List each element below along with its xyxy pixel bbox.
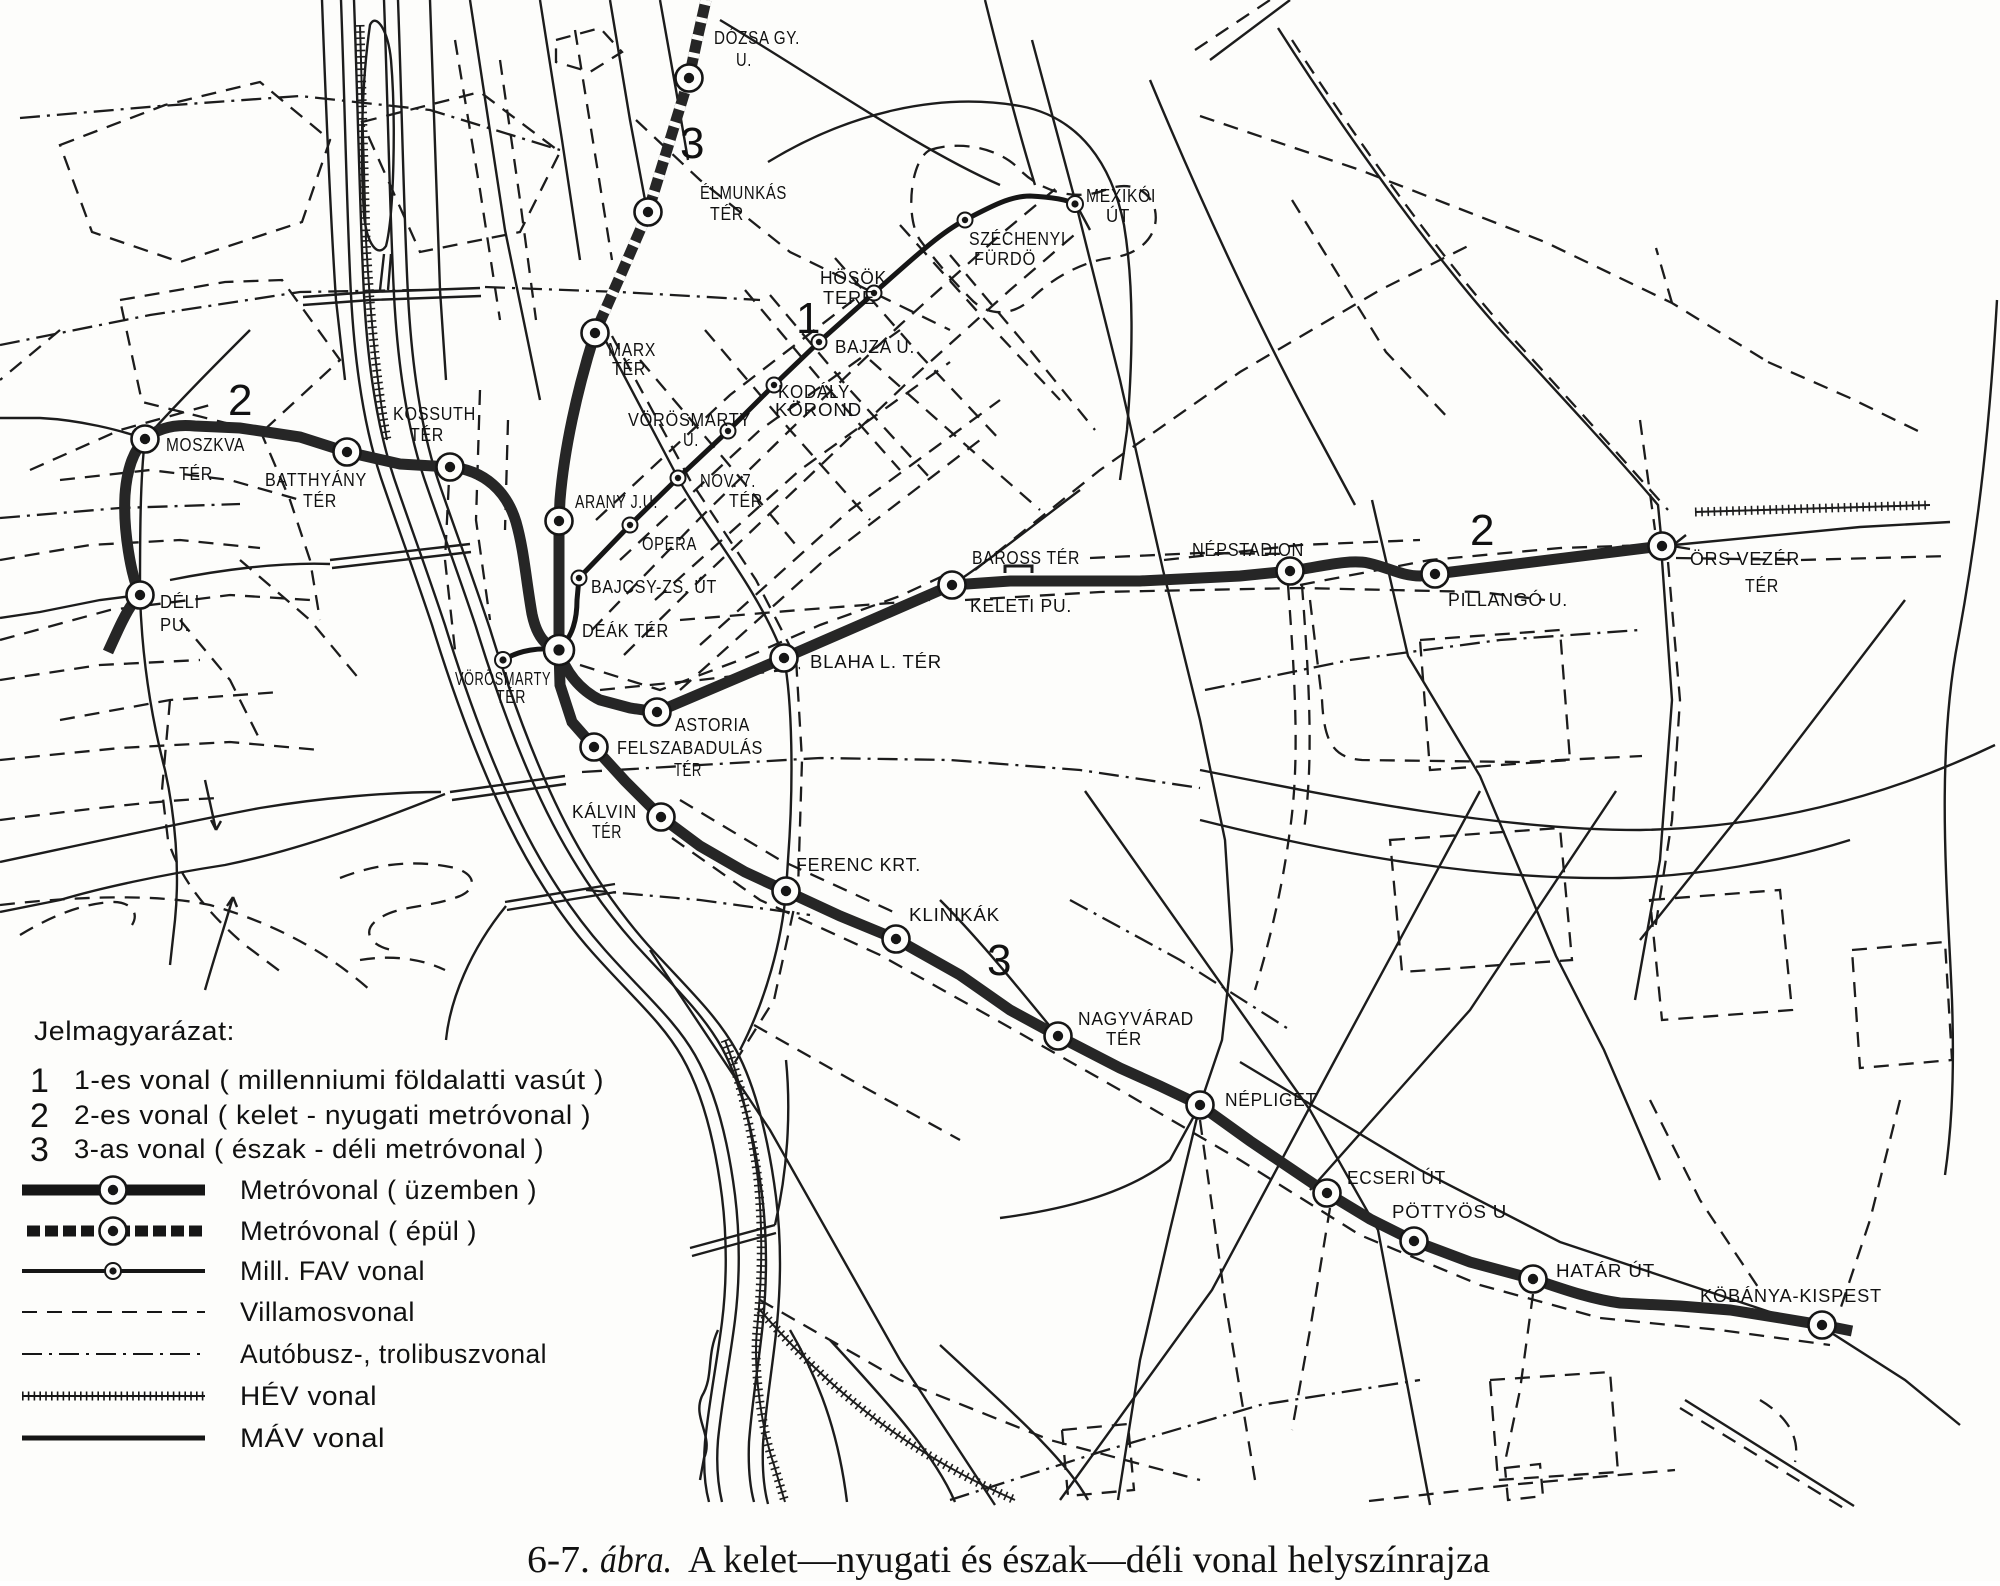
svg-text:Autóbusz-, trolibuszvonal: Autóbusz-, trolibuszvonal bbox=[240, 1339, 547, 1369]
svg-text:TÉR: TÉR bbox=[1745, 575, 1779, 596]
svg-text:Metróvonal ( üzemben ): Metróvonal ( üzemben ) bbox=[240, 1175, 537, 1205]
svg-text:MARX: MARX bbox=[608, 339, 656, 360]
svg-text:ÉLMUNKÁS: ÉLMUNKÁS bbox=[700, 182, 787, 203]
svg-text:Metróvonal ( épül ): Metróvonal ( épül ) bbox=[240, 1216, 477, 1246]
svg-text:TÉR: TÉR bbox=[592, 821, 622, 842]
svg-text:Jelmagyarázat:: Jelmagyarázat: bbox=[34, 1016, 235, 1046]
svg-text:1-es vonal ( millenniumi földa: 1-es vonal ( millenniumi földalatti vasú… bbox=[74, 1065, 604, 1095]
svg-text:ASTORIA: ASTORIA bbox=[675, 714, 750, 735]
svg-text:NÉPSTADION: NÉPSTADION bbox=[1192, 539, 1304, 560]
svg-text:NÉPLIGET: NÉPLIGET bbox=[1225, 1089, 1317, 1110]
svg-text:2: 2 bbox=[1470, 506, 1494, 555]
svg-text:SZÉCHENYI: SZÉCHENYI bbox=[969, 228, 1066, 249]
svg-text:TÉR: TÉR bbox=[303, 490, 337, 511]
svg-text:DÉLI: DÉLI bbox=[160, 591, 200, 612]
svg-text:KELETI PU.: KELETI PU. bbox=[970, 595, 1072, 616]
svg-text:MEXIKÓI: MEXIKÓI bbox=[1086, 185, 1156, 206]
svg-text:OPERA: OPERA bbox=[642, 533, 697, 554]
svg-text:FÜRDÖ: FÜRDÖ bbox=[974, 248, 1036, 269]
svg-text:DÓZSA GY.: DÓZSA GY. bbox=[714, 27, 800, 48]
svg-text:TÉR: TÉR bbox=[410, 424, 444, 445]
svg-text:ECSERI ÚT: ECSERI ÚT bbox=[1347, 1167, 1446, 1188]
svg-text:BAROSS TÉR: BAROSS TÉR bbox=[972, 547, 1080, 568]
svg-text:ARANY J.U.: ARANY J.U. bbox=[575, 491, 658, 512]
svg-text:TÉR: TÉR bbox=[612, 358, 646, 379]
svg-text:6-7.: 6-7. bbox=[527, 1539, 590, 1581]
svg-text:HÉV vonal: HÉV vonal bbox=[240, 1381, 377, 1411]
svg-text:TÉR: TÉR bbox=[1106, 1028, 1142, 1049]
svg-text:TÉR: TÉR bbox=[729, 490, 763, 511]
svg-text:Villamosvonal: Villamosvonal bbox=[240, 1297, 415, 1327]
svg-text:PU.: PU. bbox=[160, 614, 190, 635]
svg-text:PILLANGÓ U.: PILLANGÓ U. bbox=[1448, 589, 1568, 610]
svg-text:KÁLVIN: KÁLVIN bbox=[572, 801, 637, 822]
svg-text:MÁV vonal: MÁV vonal bbox=[240, 1423, 385, 1453]
svg-text:ábra.: ábra. bbox=[600, 1539, 672, 1581]
svg-text:KLINIKÁK: KLINIKÁK bbox=[909, 904, 1000, 925]
svg-text:1: 1 bbox=[796, 294, 820, 343]
svg-text:3-as vonal ( észak - déli metr: 3-as vonal ( észak - déli metróvonal ) bbox=[74, 1134, 544, 1164]
svg-text:BAJCSY-ZS. ÚT: BAJCSY-ZS. ÚT bbox=[591, 576, 717, 597]
svg-text:Mill. FAV vonal: Mill. FAV vonal bbox=[240, 1256, 425, 1286]
svg-text:KOSSUTH: KOSSUTH bbox=[393, 403, 476, 424]
svg-text:A kelet—nyugati és észak—déli: A kelet—nyugati és észak—déli vonal hely… bbox=[688, 1539, 1490, 1581]
svg-text:ÚT: ÚT bbox=[1106, 205, 1130, 226]
svg-text:TÉR: TÉR bbox=[179, 463, 213, 484]
svg-text:NOV. 7.: NOV. 7. bbox=[700, 470, 756, 491]
svg-text:HÖSÖK: HÖSÖK bbox=[820, 267, 887, 288]
svg-text:DEÁK TÉR: DEÁK TÉR bbox=[582, 620, 669, 641]
svg-text:HATÁR ÚT: HATÁR ÚT bbox=[1556, 1260, 1655, 1281]
svg-text:BATTHYÁNY: BATTHYÁNY bbox=[265, 469, 367, 490]
svg-text:TÉR: TÉR bbox=[710, 203, 744, 224]
svg-text:PÖTTYÖS U: PÖTTYÖS U bbox=[1392, 1201, 1507, 1222]
svg-text:3: 3 bbox=[680, 119, 704, 168]
svg-text:2: 2 bbox=[30, 1097, 49, 1135]
svg-text:2: 2 bbox=[228, 376, 252, 425]
svg-text:U.: U. bbox=[736, 49, 752, 70]
svg-text:3: 3 bbox=[987, 936, 1011, 985]
svg-text:BAJZA U.: BAJZA U. bbox=[835, 336, 915, 357]
svg-text:VÖRÖSMARTY: VÖRÖSMARTY bbox=[628, 409, 751, 430]
svg-text:MOSZKVA: MOSZKVA bbox=[166, 434, 245, 455]
svg-text:KÖBÁNYA-KISPEST: KÖBÁNYA-KISPEST bbox=[1700, 1285, 1882, 1306]
svg-text:TERE: TERE bbox=[823, 287, 875, 308]
svg-text:FELSZABADULÁS: FELSZABADULÁS bbox=[617, 737, 763, 758]
svg-text:3: 3 bbox=[30, 1131, 49, 1169]
svg-text:BLAHA L. TÉR: BLAHA L. TÉR bbox=[810, 651, 942, 672]
svg-text:ÖRS VEZÉR: ÖRS VEZÉR bbox=[1690, 548, 1800, 569]
svg-text:NAGYVÁRAD: NAGYVÁRAD bbox=[1078, 1008, 1194, 1029]
svg-text:FERENC KRT.: FERENC KRT. bbox=[796, 854, 921, 875]
svg-text:1: 1 bbox=[30, 1062, 49, 1100]
svg-text:TÉR: TÉR bbox=[496, 686, 526, 707]
svg-text:TÉR: TÉR bbox=[674, 759, 702, 780]
svg-text:2-es vonal ( kelet - nyugati m: 2-es vonal ( kelet - nyugati metróvonal … bbox=[74, 1100, 591, 1130]
svg-text:U.: U. bbox=[683, 429, 699, 450]
svg-text:KÖROND: KÖROND bbox=[775, 399, 862, 420]
